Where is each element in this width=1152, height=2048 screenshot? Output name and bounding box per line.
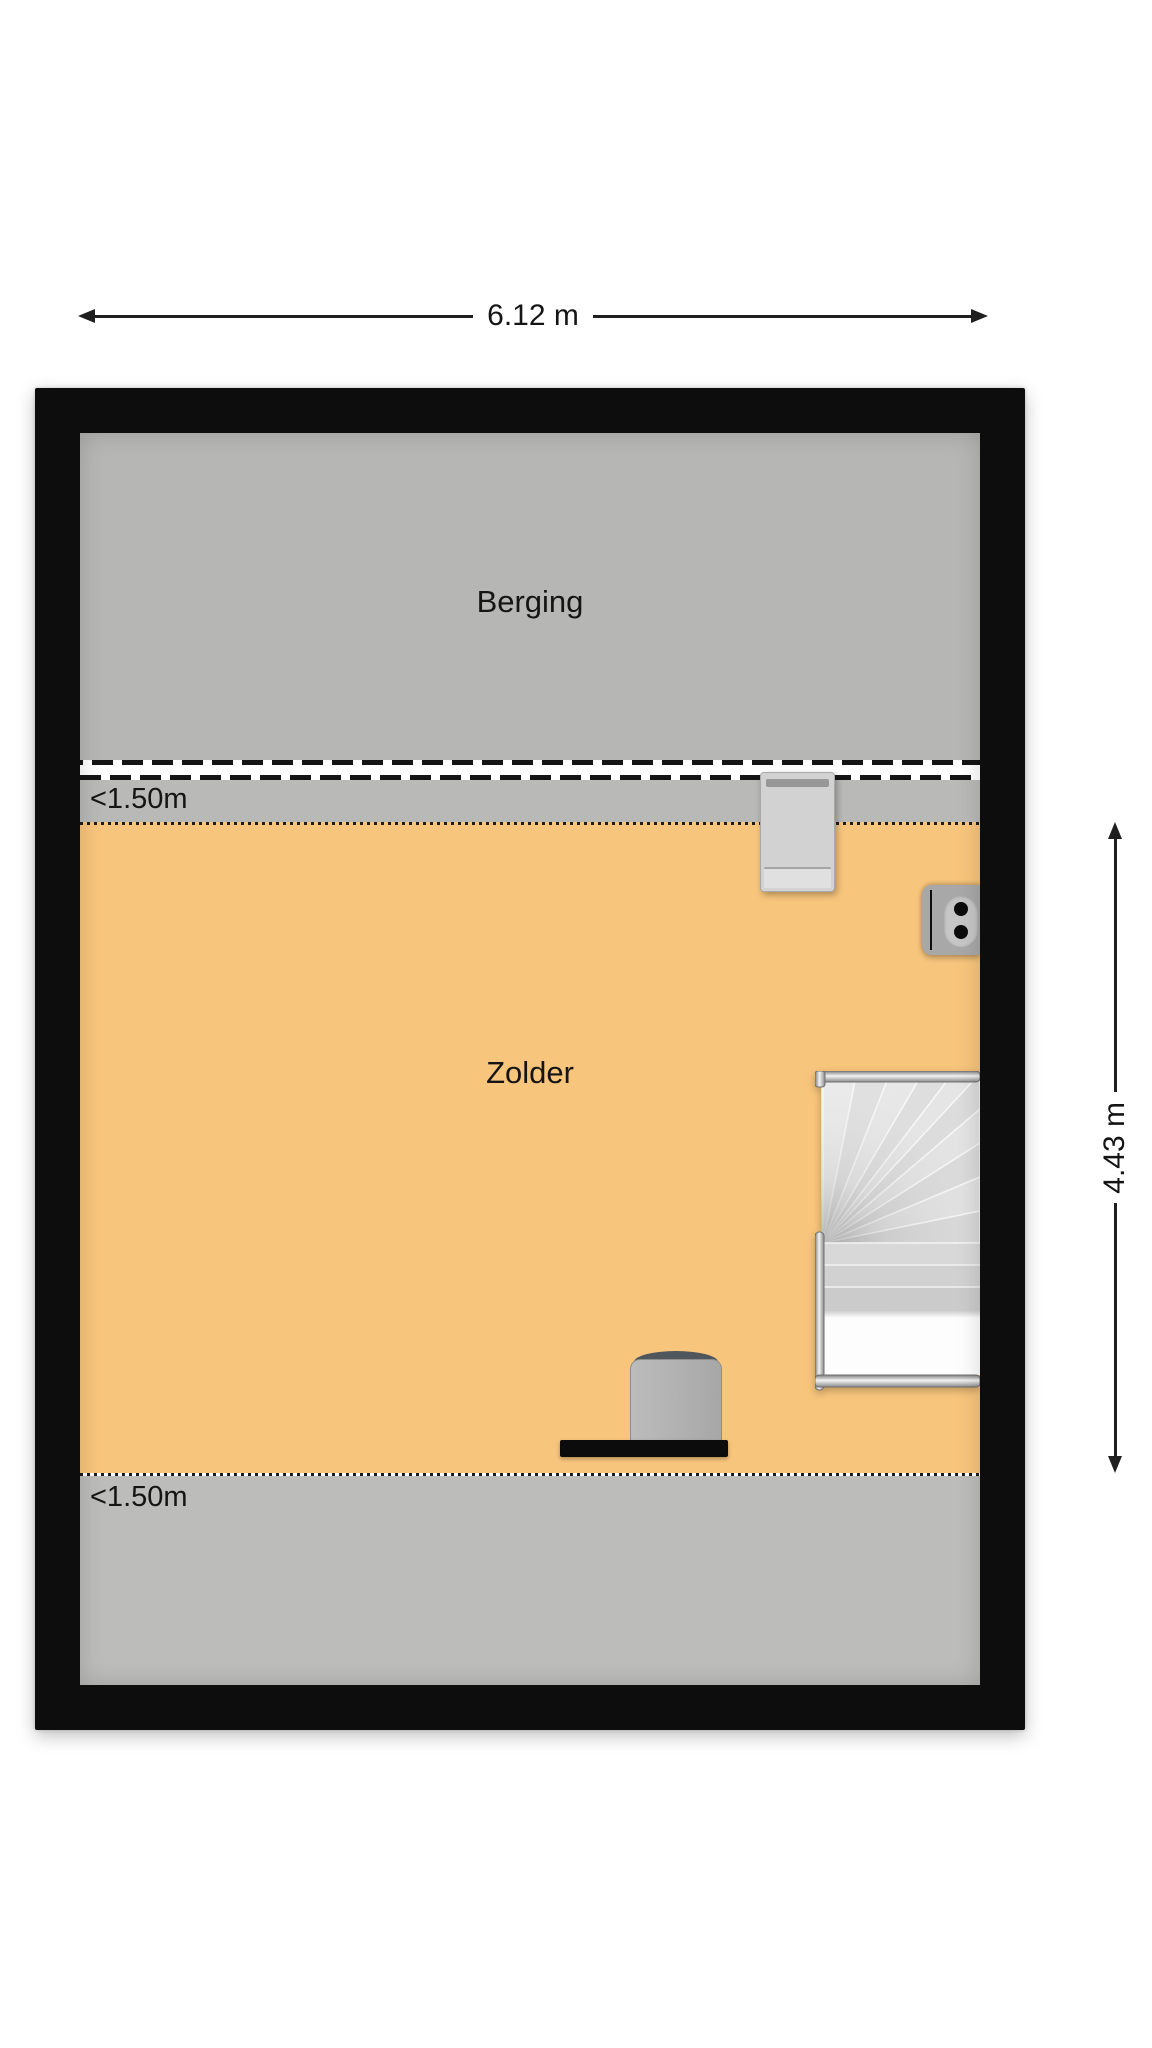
floor-plan-walls: Berging Zolder <1.50m <1.50m [35, 388, 1025, 1730]
width-dimension-label: 6.12 m [487, 301, 579, 331]
height-dimension-label: 4.43 m [1100, 1102, 1130, 1194]
cabinet-front [764, 867, 831, 888]
arrow-down-icon [1108, 1456, 1122, 1473]
staircase-icon [815, 1071, 980, 1392]
floor-plan-interior: Berging Zolder <1.50m <1.50m [80, 433, 980, 1685]
outlet-socket-face [944, 895, 978, 947]
partition-dashed-wall [80, 760, 980, 780]
dimension-line-segment [1114, 839, 1117, 1092]
dimension-line-segment [1114, 1203, 1117, 1456]
arrow-up-icon [1108, 822, 1122, 839]
headroom-strip-top [80, 780, 980, 822]
desk-icon [560, 1440, 728, 1457]
headroom-boundary-dotted-line [80, 1473, 980, 1476]
chair-seat [630, 1359, 722, 1446]
width-dimension: 6.12 m [78, 299, 988, 333]
outlet-pin-hole [954, 902, 968, 916]
outlet-pin-hole [954, 925, 968, 939]
dimension-line-segment [95, 315, 473, 318]
headroom-boundary-dotted-line [80, 822, 980, 825]
headroom-label-bottom: <1.50m [90, 1482, 188, 1514]
cabinet-handle [766, 779, 829, 787]
headroom-label-top: <1.50m [90, 784, 188, 816]
dimension-line-segment [593, 315, 971, 318]
arrow-right-icon [971, 309, 988, 323]
office-chair-icon [630, 1351, 722, 1446]
outlet-mount-line [930, 890, 932, 950]
arrow-left-icon [78, 309, 95, 323]
floor-plan-page: 6.12 m 4.43 m Berging Zolder <1.50m <1.5… [0, 0, 1152, 2048]
height-dimension: 4.43 m [1099, 822, 1131, 1473]
room-label-berging: Berging [80, 585, 980, 619]
cabinet-icon [760, 772, 835, 892]
headroom-strip-bottom [80, 1476, 980, 1685]
power-outlet-icon [922, 885, 980, 955]
